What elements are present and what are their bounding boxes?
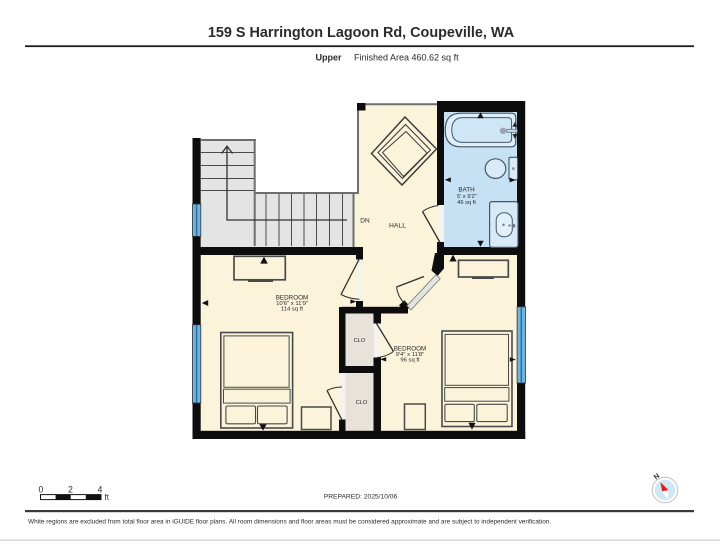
svg-text:PREPARED: 2025/10/06: PREPARED: 2025/10/06: [324, 494, 398, 501]
svg-text:Upper: Upper: [315, 53, 342, 63]
svg-text:White regions are excluded fro: White regions are excluded from total fl…: [28, 519, 551, 526]
svg-text:HALL: HALL: [389, 222, 406, 229]
svg-text:159 S Harrington Lagoon Rd, Co: 159 S Harrington Lagoon Rd, Coupeville, …: [208, 25, 515, 41]
svg-text:BATH: BATH: [458, 187, 475, 194]
svg-text:CLO: CLO: [354, 338, 366, 344]
svg-text:5' x 9'2": 5' x 9'2": [457, 194, 477, 200]
svg-text:114 sq ft: 114 sq ft: [281, 306, 304, 312]
svg-text:DN: DN: [360, 217, 370, 224]
svg-text:0: 0: [39, 485, 44, 495]
svg-text:46 sq ft: 46 sq ft: [457, 200, 476, 206]
svg-text:4: 4: [98, 485, 103, 495]
svg-text:96 sq ft: 96 sq ft: [400, 357, 420, 363]
svg-text:2: 2: [68, 485, 73, 495]
svg-text:ft: ft: [105, 493, 110, 502]
svg-text:CLO: CLO: [356, 400, 368, 406]
svg-text:Finished Area 460.62 sq ft: Finished Area 460.62 sq ft: [354, 53, 459, 63]
